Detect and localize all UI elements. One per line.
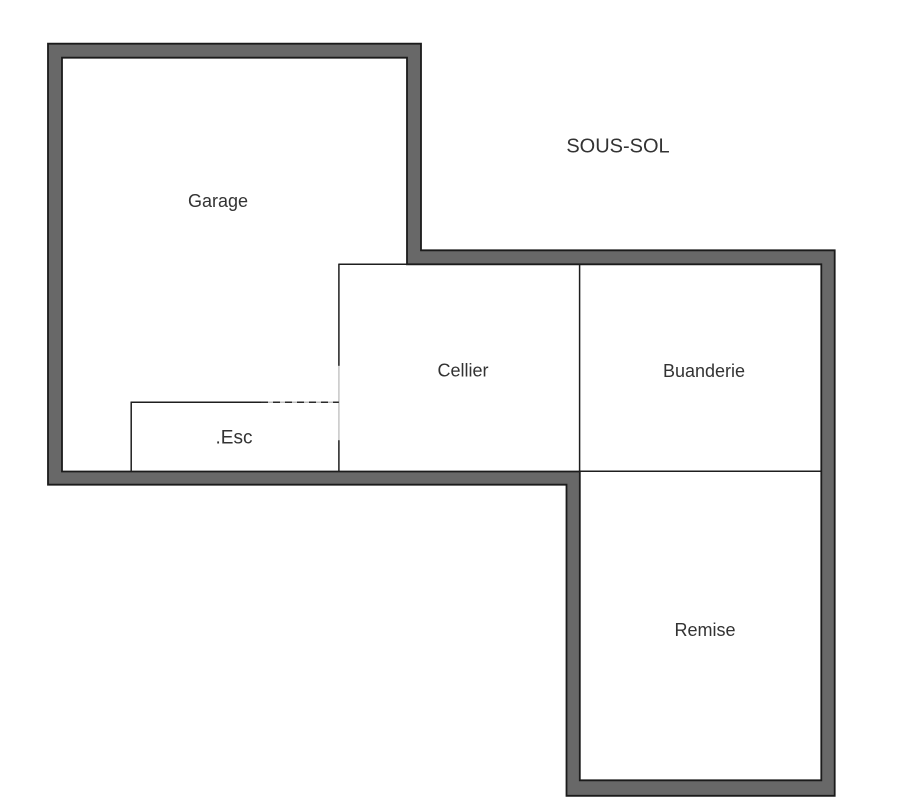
svg-text:.Esc: .Esc xyxy=(216,427,253,448)
svg-text:SOUS-SOL: SOUS-SOL xyxy=(566,136,669,158)
svg-text:Garage: Garage xyxy=(188,191,248,211)
svg-text:Remise: Remise xyxy=(674,620,735,640)
svg-text:Buanderie: Buanderie xyxy=(663,361,745,381)
svg-text:Cellier: Cellier xyxy=(437,360,488,380)
